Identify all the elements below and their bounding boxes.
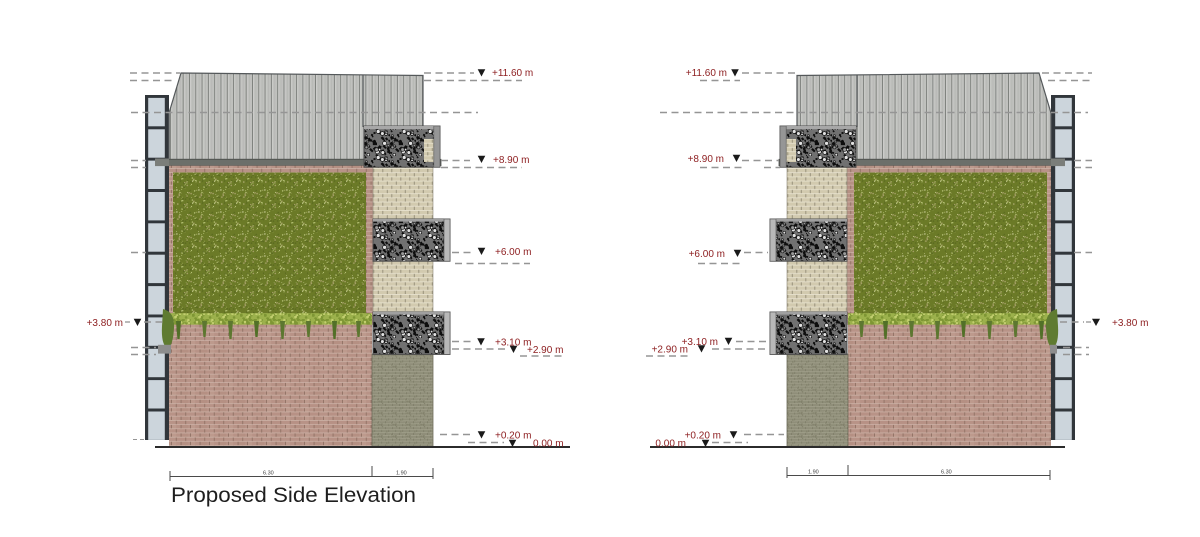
svg-text:+6.00 m: +6.00 m bbox=[495, 247, 531, 258]
svg-text:0.00 m: 0.00 m bbox=[655, 439, 686, 450]
svg-text:6.30: 6.30 bbox=[263, 471, 274, 477]
svg-text:0.00 m: 0.00 m bbox=[533, 439, 564, 450]
svg-text:1.90: 1.90 bbox=[808, 470, 819, 476]
svg-text:+2.90 m: +2.90 m bbox=[652, 345, 688, 356]
svg-text:6.30: 6.30 bbox=[941, 470, 952, 476]
svg-text:Proposed Side Elevation: Proposed Side Elevation bbox=[171, 483, 416, 507]
svg-text:+2.90 m: +2.90 m bbox=[527, 345, 563, 356]
svg-text:1.90: 1.90 bbox=[396, 471, 407, 477]
svg-text:+6.00 m: +6.00 m bbox=[689, 249, 725, 260]
svg-text:+8.90 m: +8.90 m bbox=[688, 154, 724, 165]
svg-text:+3.80 m: +3.80 m bbox=[1112, 318, 1148, 329]
svg-text:+11.60 m: +11.60 m bbox=[492, 68, 533, 79]
svg-text:+8.90 m: +8.90 m bbox=[493, 155, 529, 166]
svg-text:+11.60 m: +11.60 m bbox=[686, 68, 727, 79]
svg-text:+3.80 m: +3.80 m bbox=[87, 318, 123, 329]
